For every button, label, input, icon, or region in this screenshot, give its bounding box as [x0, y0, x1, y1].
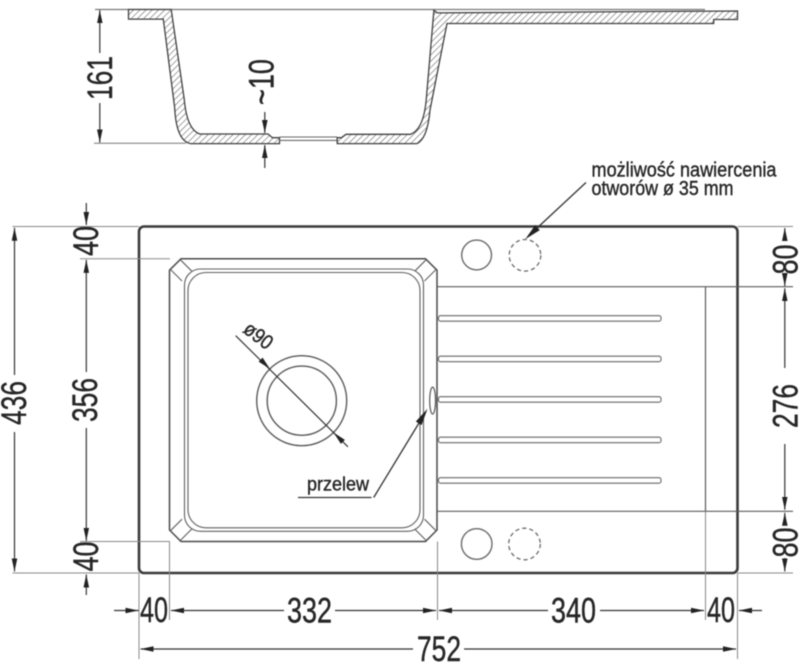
- svg-text:ø90: ø90: [239, 317, 278, 354]
- svg-text:436: 436: [0, 381, 34, 425]
- svg-text:80: 80: [767, 245, 800, 275]
- svg-text:80: 80: [767, 528, 800, 558]
- svg-text:161: 161: [81, 56, 120, 100]
- svg-text:otworów ø 35 mm: otworów ø 35 mm: [592, 177, 734, 200]
- svg-text:332: 332: [287, 592, 332, 631]
- svg-text:276: 276: [767, 384, 800, 428]
- svg-text:przelew: przelew: [307, 475, 369, 496]
- svg-text:40: 40: [707, 591, 735, 630]
- svg-text:40: 40: [67, 542, 106, 572]
- svg-text:356: 356: [66, 378, 105, 422]
- svg-text:340: 340: [551, 592, 596, 631]
- svg-text:40: 40: [67, 226, 106, 256]
- svg-text:40: 40: [140, 591, 168, 630]
- svg-text:752: 752: [417, 630, 461, 668]
- svg-text:~10: ~10: [243, 59, 282, 105]
